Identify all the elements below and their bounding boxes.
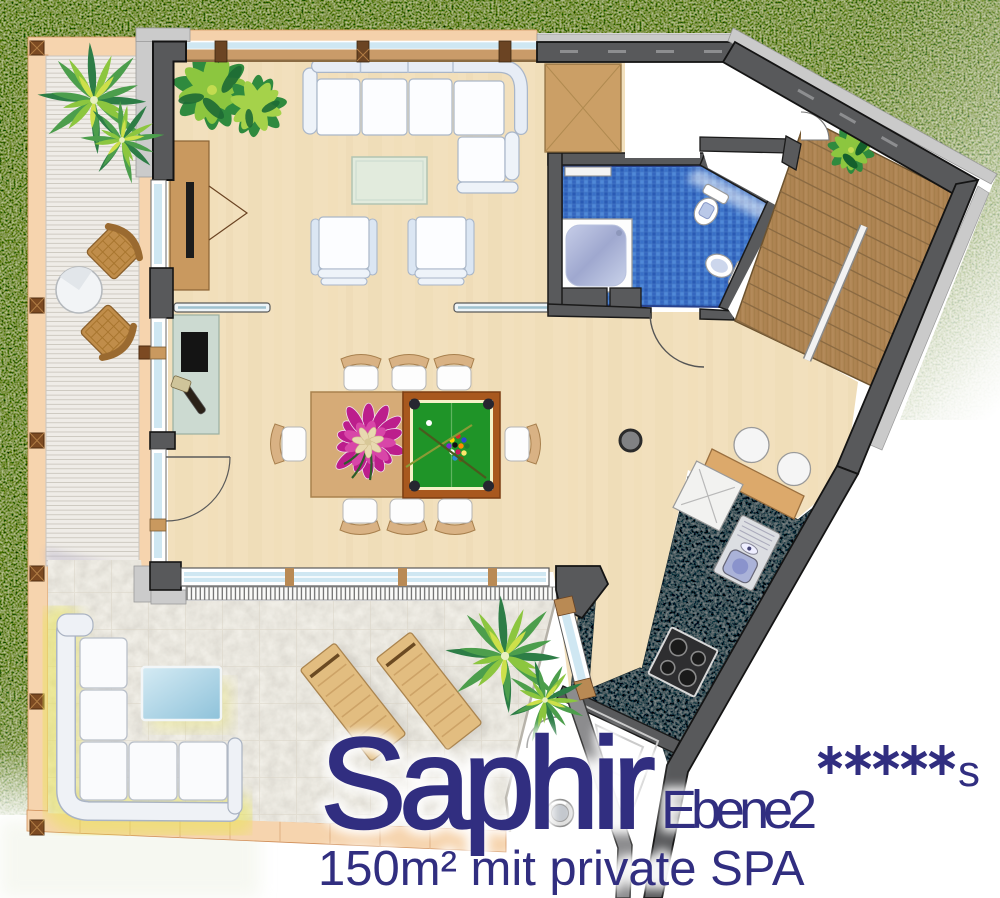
svg-text:Saphir: Saphir bbox=[320, 710, 654, 856]
svg-text:150m² mit private SPA: 150m² mit private SPA bbox=[318, 842, 805, 896]
svg-text:Ebene2: Ebene2 bbox=[661, 780, 815, 840]
svg-text:s: s bbox=[958, 747, 980, 796]
